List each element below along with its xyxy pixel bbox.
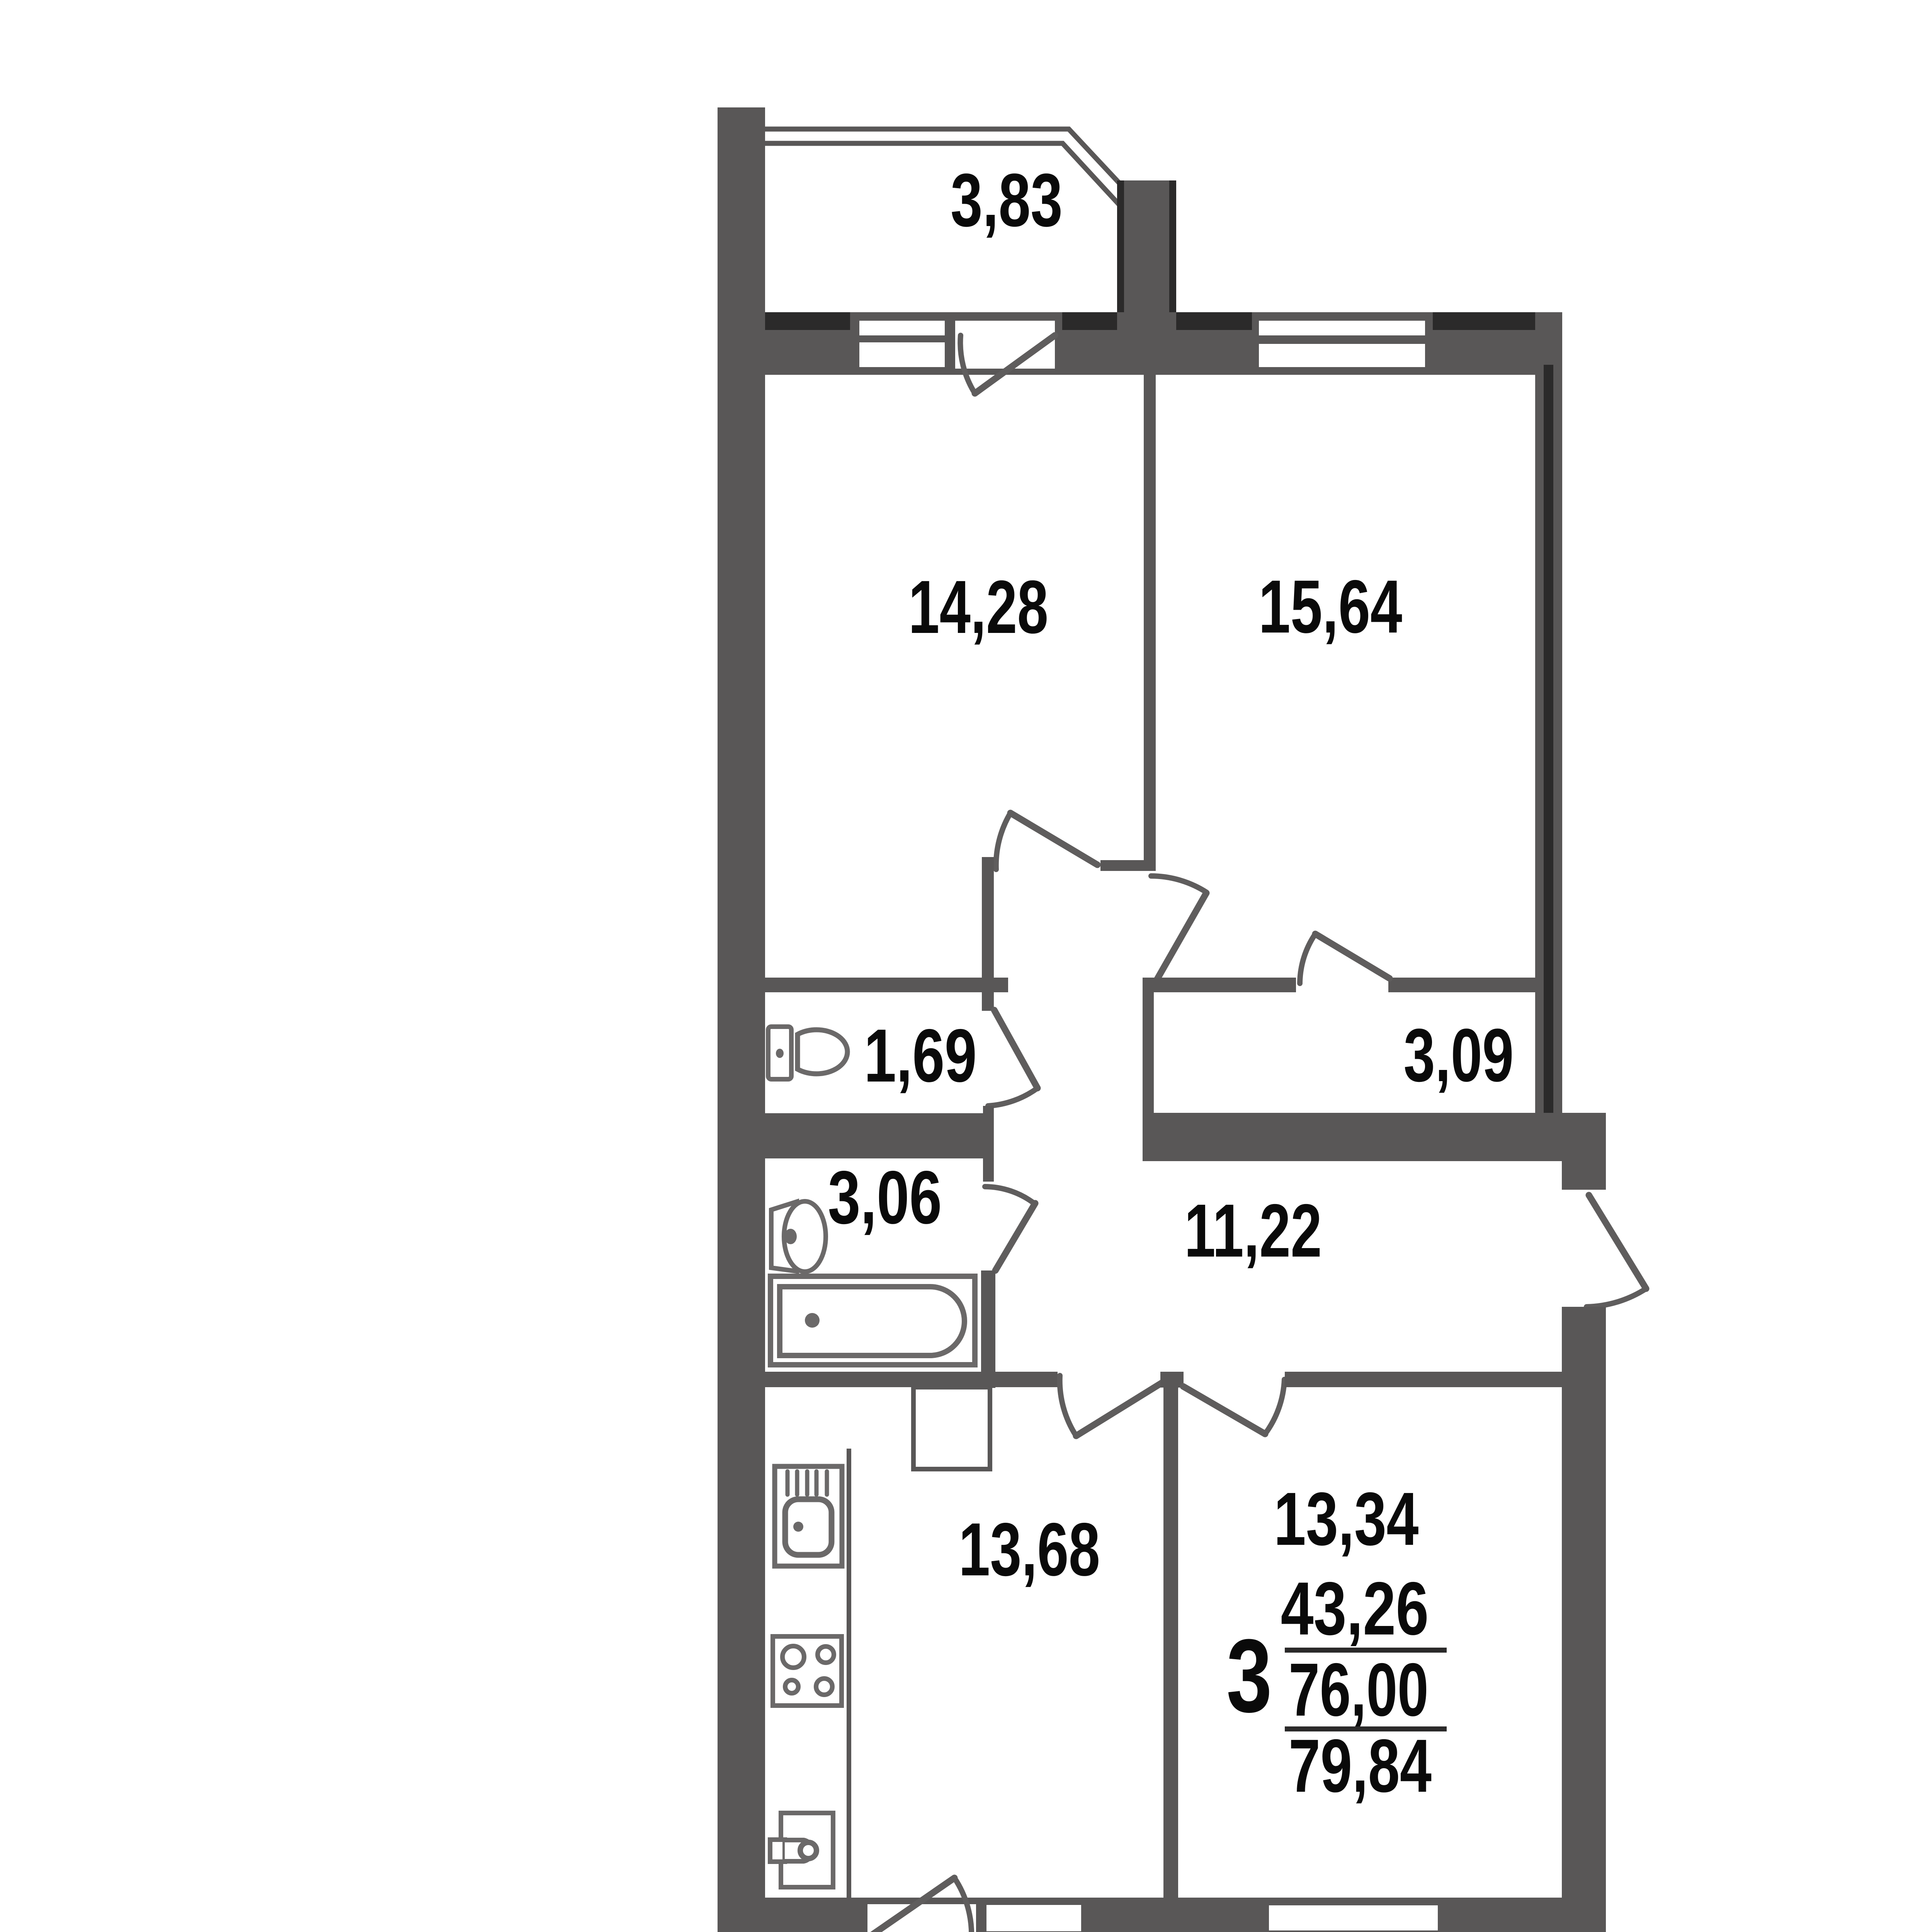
svg-text:13,34: 13,34 xyxy=(1274,1477,1419,1561)
svg-text:76,00: 76,00 xyxy=(1289,1648,1429,1732)
svg-text:11,22: 11,22 xyxy=(1184,1189,1322,1273)
svg-text:13,68: 13,68 xyxy=(959,1507,1100,1592)
svg-text:79,84: 79,84 xyxy=(1289,1724,1432,1808)
svg-text:14,28: 14,28 xyxy=(908,565,1048,649)
svg-text:1,69: 1,69 xyxy=(864,1014,977,1098)
svg-text:15,64: 15,64 xyxy=(1259,565,1402,649)
svg-text:3: 3 xyxy=(1226,1618,1272,1734)
svg-text:3,09: 3,09 xyxy=(1404,1013,1514,1097)
svg-text:3,83: 3,83 xyxy=(951,158,1063,242)
svg-text:3,06: 3,06 xyxy=(828,1155,942,1240)
svg-text:43,26: 43,26 xyxy=(1281,1566,1429,1651)
